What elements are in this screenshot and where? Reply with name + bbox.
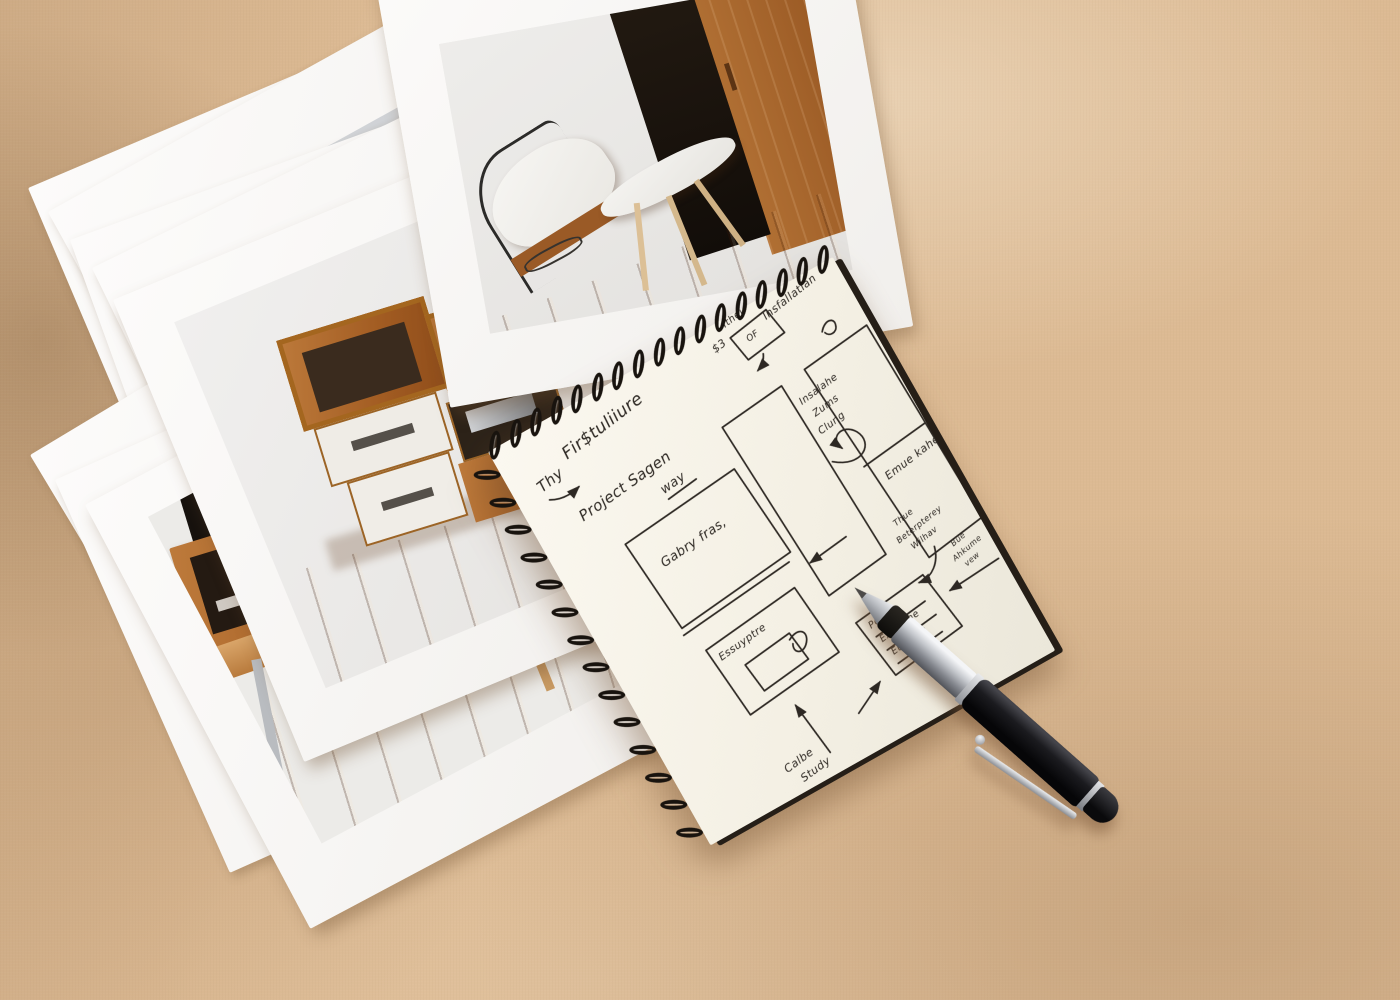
spiral-coil	[775, 268, 789, 298]
spiral-coil	[567, 635, 594, 645]
spiral-coil	[755, 279, 769, 309]
spiral-coil	[508, 419, 522, 449]
spiral-coil	[598, 690, 625, 700]
spiral-coil	[673, 326, 687, 356]
spiral-coil	[816, 244, 830, 274]
pen-clip-ball	[973, 733, 987, 747]
spiral-coil	[520, 552, 547, 562]
spiral-coil	[611, 361, 625, 391]
spiral-coil	[796, 256, 810, 286]
spiral-coil	[489, 497, 516, 507]
spiral-coil	[529, 407, 543, 437]
spiral-coil	[631, 349, 645, 379]
spiral-coil	[734, 291, 748, 321]
spiral-coil	[645, 772, 672, 782]
spiral-coil	[652, 337, 666, 367]
spiral-coil	[549, 395, 563, 425]
spiral-coil	[714, 302, 728, 332]
spiral-coil	[693, 314, 707, 344]
spiral-coil	[488, 430, 502, 460]
spiral-coil	[570, 384, 584, 414]
spiral-coil	[590, 372, 604, 402]
flatlay-scene: Thy Fir$tuliiure $3 Ithel OF Insfallatia…	[0, 0, 1400, 1000]
